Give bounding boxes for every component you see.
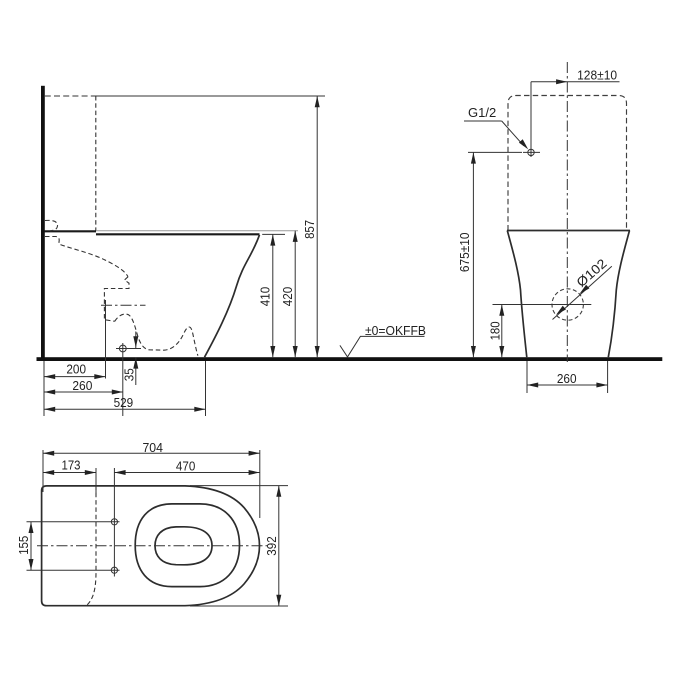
svg-text:392: 392 (264, 536, 279, 555)
svg-text:35: 35 (122, 368, 137, 381)
svg-text:410: 410 (257, 287, 272, 306)
svg-text:529: 529 (114, 395, 134, 410)
svg-text:470: 470 (176, 458, 195, 473)
svg-text:173: 173 (62, 458, 81, 473)
svg-text:675±10: 675±10 (457, 233, 472, 273)
svg-text:857: 857 (302, 220, 317, 239)
svg-text:704: 704 (142, 440, 163, 455)
svg-text:±0=OKFFB: ±0=OKFFB (365, 323, 426, 338)
svg-text:420: 420 (280, 287, 295, 306)
svg-text:260: 260 (557, 371, 577, 386)
svg-text:180: 180 (487, 321, 502, 340)
svg-text:200: 200 (66, 362, 86, 377)
svg-text:260: 260 (72, 378, 92, 393)
svg-text:128±10: 128±10 (577, 68, 617, 83)
svg-text:155: 155 (16, 536, 31, 555)
svg-text:G1/2: G1/2 (468, 105, 496, 120)
